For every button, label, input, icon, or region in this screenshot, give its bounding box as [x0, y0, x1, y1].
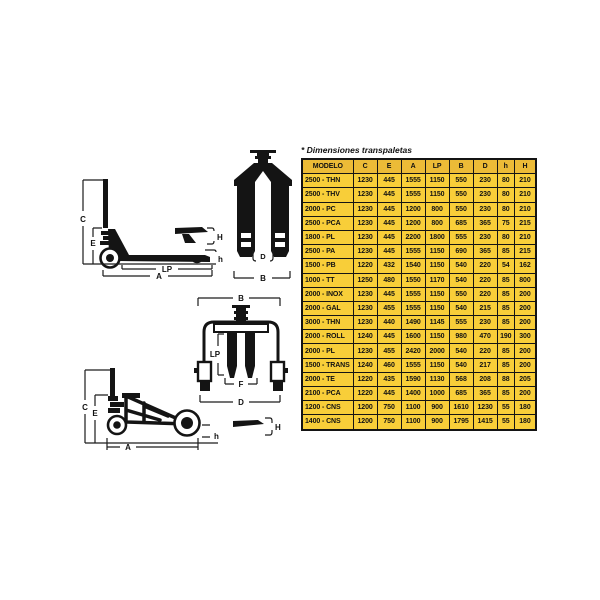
spec-sheet: C E h LP A H	[0, 0, 600, 600]
dimensions-table: MODELOCEALPBDhH 2500 - THN12304451555115…	[301, 158, 537, 431]
dimension-label-e: E	[90, 239, 96, 248]
value-cell: 750	[377, 401, 401, 415]
value-cell: 365	[473, 245, 497, 259]
value-cell: 1590	[401, 372, 425, 386]
value-cell: 54	[497, 259, 514, 273]
value-cell: 1555	[401, 174, 425, 188]
carriage-bar	[214, 324, 268, 332]
value-cell: 88	[497, 372, 514, 386]
value-cell: 432	[377, 259, 401, 273]
value-cell: 208	[473, 372, 497, 386]
model-cell: 2000 - INOX	[302, 287, 353, 301]
value-cell: 685	[449, 216, 473, 230]
table-row: 2500 - PA12304451555115069036585215	[302, 245, 536, 259]
value-cell: 1555	[401, 301, 425, 315]
value-cell: 800	[514, 273, 536, 287]
value-cell: 1230	[353, 344, 377, 358]
value-cell: 1230	[353, 216, 377, 230]
value-cell: 1100	[401, 401, 425, 415]
value-cell: 85	[497, 301, 514, 315]
value-cell: 75	[497, 216, 514, 230]
model-cell: 1500 - PB	[302, 259, 353, 273]
dimension-label-b: B	[238, 294, 244, 303]
value-cell: 1230	[353, 287, 377, 301]
table-row: 2000 - ROLL124044516001150980470190300	[302, 330, 536, 344]
value-cell: 85	[497, 344, 514, 358]
value-cell: 1230	[353, 316, 377, 330]
model-cell: 2000 - TE	[302, 372, 353, 386]
table-row: 1200 - CNS120075011009001610123055180	[302, 401, 536, 415]
dimension-line-c	[85, 370, 110, 443]
value-cell: 1150	[425, 287, 449, 301]
model-cell: 2000 - PL	[302, 344, 353, 358]
raised-fork-shape	[233, 420, 264, 427]
table-row: 3000 - THN12304401490114555523085200	[302, 316, 536, 330]
value-cell: 230	[473, 316, 497, 330]
value-cell: 200	[514, 287, 536, 301]
value-cell: 2000	[425, 344, 449, 358]
value-cell: 55	[497, 401, 514, 415]
value-cell: 1230	[473, 401, 497, 415]
value-cell: 1230	[353, 245, 377, 259]
dimension-label-c: C	[80, 215, 86, 224]
value-cell: 1600	[401, 330, 425, 344]
value-cell: 550	[449, 287, 473, 301]
model-cell: 2000 - ROLL	[302, 330, 353, 344]
value-cell: 55	[497, 415, 514, 430]
tiller-stem	[257, 153, 269, 156]
tiller-stem	[236, 314, 246, 317]
value-cell: 1150	[425, 259, 449, 273]
right-fork-shape	[245, 332, 255, 378]
dimension-line-H	[207, 228, 214, 244]
value-cell: 445	[377, 188, 401, 202]
value-cell: 210	[514, 202, 536, 216]
model-cell: 3000 - THN	[302, 316, 353, 330]
value-cell: 1555	[401, 188, 425, 202]
value-cell: 445	[377, 202, 401, 216]
roller-window	[274, 241, 286, 248]
value-cell: 200	[514, 387, 536, 401]
value-cell: 215	[473, 301, 497, 315]
dimension-line-H	[265, 418, 272, 435]
dimension-label-H: H	[275, 423, 281, 432]
dimension-label-lp: LP	[162, 265, 173, 274]
tiller-stem	[255, 156, 271, 159]
load-roller	[192, 257, 202, 263]
value-cell: 1220	[353, 259, 377, 273]
dimension-line-h	[202, 425, 210, 437]
model-cell: 2000 - PC	[302, 202, 353, 216]
handle-shape	[110, 368, 115, 396]
value-cell: 230	[473, 188, 497, 202]
dimension-label-b: B	[260, 274, 266, 283]
column-header-c: C	[353, 159, 377, 174]
value-cell: 85	[497, 287, 514, 301]
tiller-grip	[250, 150, 276, 153]
value-cell: 1230	[353, 230, 377, 244]
value-cell: 85	[497, 245, 514, 259]
value-cell: 900	[425, 415, 449, 430]
table-row: 1500 - PB12204321540115054022054162	[302, 259, 536, 273]
roller-window	[240, 241, 252, 248]
value-cell: 445	[377, 330, 401, 344]
value-cell: 220	[473, 273, 497, 287]
table-row: 2100 - PCA12204451400100068536585200	[302, 387, 536, 401]
table-row: 2000 - PC1230445120080055023080210	[302, 202, 536, 216]
value-cell: 480	[377, 273, 401, 287]
column-header-lp: LP	[425, 159, 449, 174]
value-cell: 980	[449, 330, 473, 344]
value-cell: 1200	[353, 415, 377, 430]
raised-fork-shape	[175, 227, 208, 234]
table-row: 2500 - THV12304451555115055023080210	[302, 188, 536, 202]
model-cell: 2100 - PCA	[302, 387, 353, 401]
front-wheel-hub	[113, 421, 121, 429]
value-cell: 460	[377, 358, 401, 372]
value-cell: 2420	[401, 344, 425, 358]
dimension-label-h: h	[218, 255, 223, 264]
table-section: * Dimensiones transpaletas MODELOCEALPBD…	[301, 145, 540, 431]
value-cell: 540	[449, 273, 473, 287]
column-header-b: B	[449, 159, 473, 174]
value-cell: 1200	[401, 202, 425, 216]
value-cell: 455	[377, 301, 401, 315]
value-cell: 80	[497, 230, 514, 244]
value-cell: 540	[449, 301, 473, 315]
steer-wheel-hub	[106, 254, 114, 262]
tiller-stem	[234, 317, 248, 320]
value-cell: 1220	[353, 372, 377, 386]
value-cell: 190	[497, 330, 514, 344]
table-row: 2500 - THN12304451555115055023080210	[302, 174, 536, 188]
value-cell: 1000	[425, 387, 449, 401]
value-cell: 200	[514, 316, 536, 330]
value-cell: 440	[377, 316, 401, 330]
dimension-label-a: A	[156, 272, 162, 281]
value-cell: 445	[377, 216, 401, 230]
value-cell: 1540	[401, 259, 425, 273]
value-cell: 750	[377, 415, 401, 430]
value-cell: 900	[425, 401, 449, 415]
value-cell: 230	[473, 174, 497, 188]
value-cell: 1800	[425, 230, 449, 244]
value-cell: 80	[497, 202, 514, 216]
value-cell: 220	[473, 287, 497, 301]
dimension-line-a	[107, 438, 198, 450]
value-cell: 85	[497, 358, 514, 372]
dimension-line-h	[205, 250, 216, 252]
value-cell: 445	[377, 245, 401, 259]
pump-detail	[110, 402, 124, 407]
value-cell: 210	[514, 174, 536, 188]
table-header: MODELOCEALPBDhH	[302, 159, 536, 174]
value-cell: 220	[473, 259, 497, 273]
tiller-grip	[232, 305, 250, 308]
diagram-raised-fork-detail: H	[222, 414, 306, 446]
value-cell: 80	[497, 188, 514, 202]
value-cell: 1240	[353, 330, 377, 344]
value-cell: 1240	[353, 358, 377, 372]
value-cell: 180	[514, 415, 536, 430]
value-cell: 365	[473, 216, 497, 230]
value-cell: 1490	[401, 316, 425, 330]
fork-gap	[255, 171, 271, 257]
value-cell: 1170	[425, 273, 449, 287]
value-cell: 85	[497, 387, 514, 401]
value-cell: 445	[377, 230, 401, 244]
value-cell: 550	[449, 174, 473, 188]
value-cell: 1250	[353, 273, 377, 287]
roller-window	[274, 232, 286, 239]
value-cell: 1200	[401, 216, 425, 230]
dimension-label-H: H	[217, 233, 223, 242]
table-row: 1000 - TT12504801550117054022085800	[302, 273, 536, 287]
column-header-d: D	[473, 159, 497, 174]
model-cell: 2500 - THV	[302, 188, 353, 202]
value-cell: 435	[377, 372, 401, 386]
rear-wheel-hub	[181, 417, 193, 429]
value-cell: 80	[497, 174, 514, 188]
value-cell: 1220	[353, 387, 377, 401]
value-cell: 550	[449, 188, 473, 202]
value-cell: 200	[514, 301, 536, 315]
value-cell: 1150	[425, 174, 449, 188]
tiller-stem	[234, 311, 248, 314]
value-cell: 540	[449, 259, 473, 273]
dimension-label-e: E	[92, 409, 98, 418]
value-cell: 220	[473, 344, 497, 358]
value-cell: 1150	[425, 358, 449, 372]
model-cell: 1500 - TRANS	[302, 358, 353, 372]
dimension-label-d: D	[238, 398, 244, 407]
value-cell: 1415	[473, 415, 497, 430]
diagram-forks-front-view: D B	[226, 146, 298, 298]
value-cell: 217	[473, 358, 497, 372]
dimension-label-a: A	[125, 443, 131, 452]
value-cell: 1200	[353, 401, 377, 415]
value-cell: 1230	[353, 202, 377, 216]
value-cell: 1150	[425, 188, 449, 202]
value-cell: 230	[473, 230, 497, 244]
handle-shape	[103, 179, 108, 228]
value-cell: 1555	[401, 358, 425, 372]
value-cell: 1150	[425, 301, 449, 315]
table-row: 2000 - GAL12304551555115054021585200	[302, 301, 536, 315]
table-row: 2000 - TE12204351590113056820888205	[302, 372, 536, 386]
value-cell: 800	[425, 202, 449, 216]
table-row: 2000 - PL12304552420200054022085200	[302, 344, 536, 358]
value-cell: 540	[449, 358, 473, 372]
value-cell: 555	[449, 316, 473, 330]
diagram-pallet-truck-side-view: C E h LP A H	[56, 166, 234, 296]
value-cell: 365	[473, 387, 497, 401]
value-cell: 1150	[425, 330, 449, 344]
column-header-a: A	[401, 159, 425, 174]
pump-detail	[108, 408, 120, 413]
value-cell: 200	[514, 344, 536, 358]
column-header-h: h	[497, 159, 514, 174]
model-cell: 1200 - CNS	[302, 401, 353, 415]
tiller-stem	[236, 308, 246, 311]
value-cell: 445	[377, 174, 401, 188]
value-cell: 685	[449, 387, 473, 401]
table-row: 1400 - CNS120075011009001795141555180	[302, 415, 536, 430]
value-cell: 1230	[353, 174, 377, 188]
column-header-e: E	[377, 159, 401, 174]
value-cell: 555	[449, 230, 473, 244]
value-cell: 550	[449, 202, 473, 216]
value-cell: 180	[514, 401, 536, 415]
value-cell: 445	[377, 287, 401, 301]
value-cell: 800	[425, 216, 449, 230]
table-title: * Dimensiones transpaletas	[301, 145, 540, 155]
value-cell: 445	[377, 387, 401, 401]
table-row: 2000 - INOX12304451555115055022085200	[302, 287, 536, 301]
value-cell: 205	[514, 372, 536, 386]
value-cell: 300	[514, 330, 536, 344]
dimension-label-d: D	[260, 252, 266, 261]
value-cell: 1555	[401, 287, 425, 301]
value-cell: 1795	[449, 415, 473, 430]
right-stabilizer-leg	[271, 362, 284, 381]
value-cell: 568	[449, 372, 473, 386]
header-row: MODELOCEALPBDhH	[302, 159, 536, 174]
model-cell: 2500 - PA	[302, 245, 353, 259]
value-cell: 540	[449, 344, 473, 358]
value-cell: 1400	[401, 387, 425, 401]
value-cell: 1230	[353, 301, 377, 315]
value-cell: 230	[473, 202, 497, 216]
model-cell: 1800 - PL	[302, 230, 353, 244]
value-cell: 1100	[401, 415, 425, 430]
pump-detail	[108, 396, 118, 401]
value-cell: 85	[497, 316, 514, 330]
dimension-line-e	[95, 395, 108, 443]
dimension-label-h: h	[214, 432, 219, 441]
right-stabilizer-foot	[273, 381, 283, 391]
value-cell: 215	[514, 245, 536, 259]
value-cell: 215	[514, 216, 536, 230]
column-header-modelo: MODELO	[302, 159, 353, 174]
table-row: 1500 - TRANS12404601555115054021785200	[302, 358, 536, 372]
value-cell: 1145	[425, 316, 449, 330]
model-cell: 2500 - PCA	[302, 216, 353, 230]
value-cell: 162	[514, 259, 536, 273]
model-cell: 1000 - TT	[302, 273, 353, 287]
diagram-highlift-side-view: C E h A	[56, 354, 236, 460]
model-cell: 2000 - GAL	[302, 301, 353, 315]
table-row: 2500 - PCA1230445120080068536575215	[302, 216, 536, 230]
value-cell: 455	[377, 344, 401, 358]
value-cell: 1150	[425, 245, 449, 259]
value-cell: 85	[497, 273, 514, 287]
column-header-h: H	[514, 159, 536, 174]
model-cell: 2500 - THN	[302, 174, 353, 188]
table-body: 2500 - THN123044515551150550230802102500…	[302, 174, 536, 430]
raised-fork-support	[182, 234, 196, 243]
model-cell: 1400 - CNS	[302, 415, 353, 430]
table-row: 1800 - PL12304452200180055523080210	[302, 230, 536, 244]
value-cell: 200	[514, 358, 536, 372]
value-cell: 470	[473, 330, 497, 344]
dimension-label-c: C	[82, 403, 88, 412]
roller-window	[240, 232, 252, 239]
value-cell: 1555	[401, 245, 425, 259]
value-cell: 1130	[425, 372, 449, 386]
value-cell: 2200	[401, 230, 425, 244]
value-cell: 690	[449, 245, 473, 259]
dimension-label-f: F	[239, 380, 244, 389]
value-cell: 1610	[449, 401, 473, 415]
value-cell: 210	[514, 188, 536, 202]
value-cell: 1550	[401, 273, 425, 287]
value-cell: 210	[514, 230, 536, 244]
value-cell: 1230	[353, 188, 377, 202]
leg-bolt	[284, 368, 288, 373]
